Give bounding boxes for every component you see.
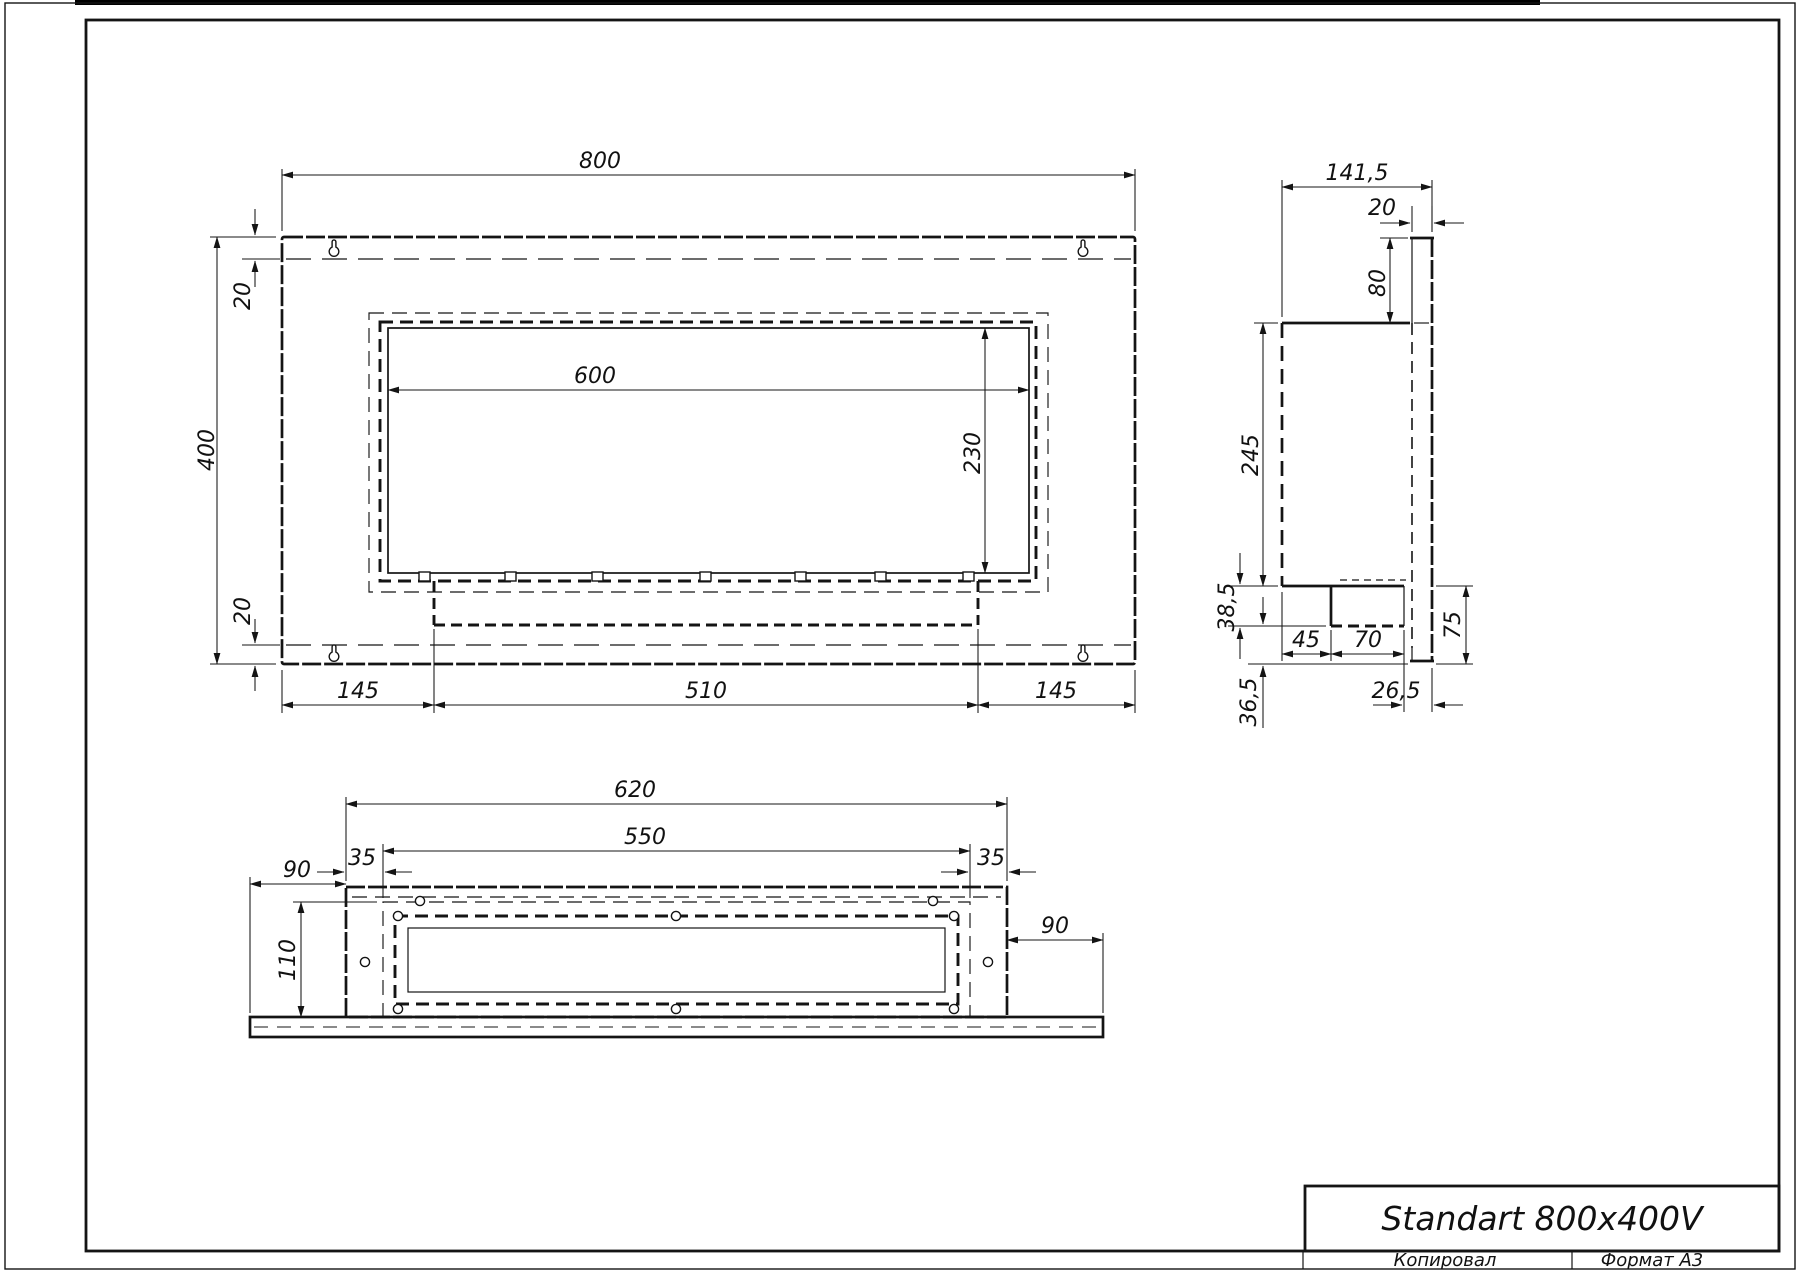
- dim-side-burner-depth: 70: [1354, 628, 1382, 653]
- dim-side-bracket-offset: 26,5: [1372, 679, 1421, 704]
- drawing-sheet: 800 400 20 20 600 230 145 510 145: [0, 0, 1800, 1273]
- dim-opening-height: 230: [961, 432, 986, 474]
- keyhole-slot-icon: [1078, 240, 1088, 256]
- keyhole-slot-icon: [329, 240, 339, 256]
- dim-front-right-offset: 145: [1035, 679, 1077, 704]
- screw-holes: [360, 896, 992, 1013]
- dim-side-body-height: 245: [1239, 434, 1264, 476]
- title-block-format-label: Формат А3: [1601, 1250, 1704, 1271]
- keyhole-slot-icon: [1078, 645, 1088, 661]
- page-frame: [5, 0, 1795, 1269]
- opening-outline: [388, 328, 1029, 573]
- dim-front-bottom-fold: 20: [231, 597, 256, 625]
- front-panel-outline: [282, 237, 1135, 664]
- title-block-copied-label: Копировал: [1394, 1250, 1497, 1271]
- keyhole-slot-icon: [329, 645, 339, 661]
- dim-front-width: 800: [579, 149, 621, 174]
- bottom-view: [250, 887, 1103, 1037]
- dim-side-lower-gap: 36,5: [1237, 678, 1262, 727]
- dim-bottom-width: 620: [614, 778, 656, 803]
- dim-bottom-right-margin: 35: [977, 846, 1005, 871]
- front-view-dimensions: 800 400 20 20 600 230 145 510 145: [195, 149, 1135, 713]
- bottom-box-outline: [346, 887, 1007, 1017]
- inner-box-flange-outline: [380, 322, 1036, 581]
- technical-drawing-canvas: 800 400 20 20 600 230 145 510 145: [0, 0, 1800, 1273]
- dim-side-depth: 141,5: [1326, 161, 1389, 186]
- dim-front-top-fold: 20: [231, 282, 256, 310]
- dim-front-height: 400: [195, 429, 220, 471]
- dim-bottom-inner-width: 550: [624, 825, 666, 850]
- front-view: [282, 237, 1135, 664]
- dim-bottom-depth: 110: [276, 939, 301, 981]
- side-view: [1282, 238, 1434, 662]
- inner-box-hidden-outline: [369, 313, 1048, 592]
- dim-side-burner-offset: 45: [1292, 628, 1320, 653]
- dim-burner-width: 510: [685, 679, 727, 704]
- dim-bottom-left-margin: 35: [348, 846, 376, 871]
- dim-side-bracket-height: 75: [1441, 611, 1466, 639]
- burner-hidden-outline: [434, 581, 978, 625]
- dim-side-flange: 20: [1368, 196, 1396, 221]
- title-block: Standart 800x400V Копировал Формат А3: [1303, 1186, 1779, 1271]
- dim-side-burner-height: 38,5: [1215, 583, 1240, 632]
- side-view-dimensions: 141,5 20 80 245 38,5 36,5 45 70: [1215, 161, 1473, 728]
- dim-opening-width: 600: [574, 364, 616, 389]
- dim-bottom-left-ext: 90: [283, 858, 311, 883]
- dim-front-left-offset: 145: [337, 679, 379, 704]
- title-block-product-name: Standart 800x400V: [1381, 1199, 1705, 1238]
- dim-bottom-right-ext: 90: [1041, 914, 1069, 939]
- dim-side-top-offset: 80: [1366, 269, 1391, 297]
